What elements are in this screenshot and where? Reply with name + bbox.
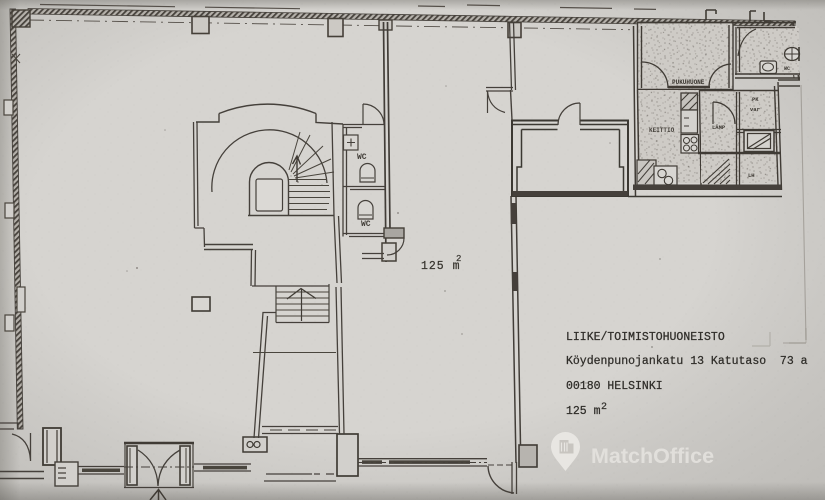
- svg-text:MatchOffice: MatchOffice: [591, 444, 714, 468]
- svg-text:Köydenpunojankatu 13 Katutaso: Köydenpunojankatu 13 Katutaso 73 a: [566, 355, 808, 368]
- svg-text:LIIKE/TOIMISTOHUONEISTO: LIIKE/TOIMISTOHUONEISTO: [566, 331, 725, 344]
- svg-text:00180 HELSINKI: 00180 HELSINKI: [566, 380, 663, 393]
- svg-text:WC: WC: [361, 220, 371, 229]
- svg-text:2: 2: [601, 402, 607, 413]
- svg-text:2: 2: [456, 254, 461, 264]
- svg-text:125 m: 125 m: [566, 405, 601, 418]
- svg-text:WC: WC: [357, 153, 367, 162]
- svg-text:PK: PK: [752, 96, 759, 103]
- svg-text:WC: WC: [784, 66, 790, 72]
- svg-text:LH: LH: [748, 172, 755, 179]
- svg-text:125 m: 125 m: [421, 260, 461, 273]
- svg-text:LÄMP: LÄMP: [712, 124, 726, 131]
- svg-text:PUKUHUONE: PUKUHUONE: [672, 79, 705, 86]
- svg-text:var: var: [750, 106, 760, 113]
- svg-text:KEITTIÖ: KEITTIÖ: [649, 127, 675, 134]
